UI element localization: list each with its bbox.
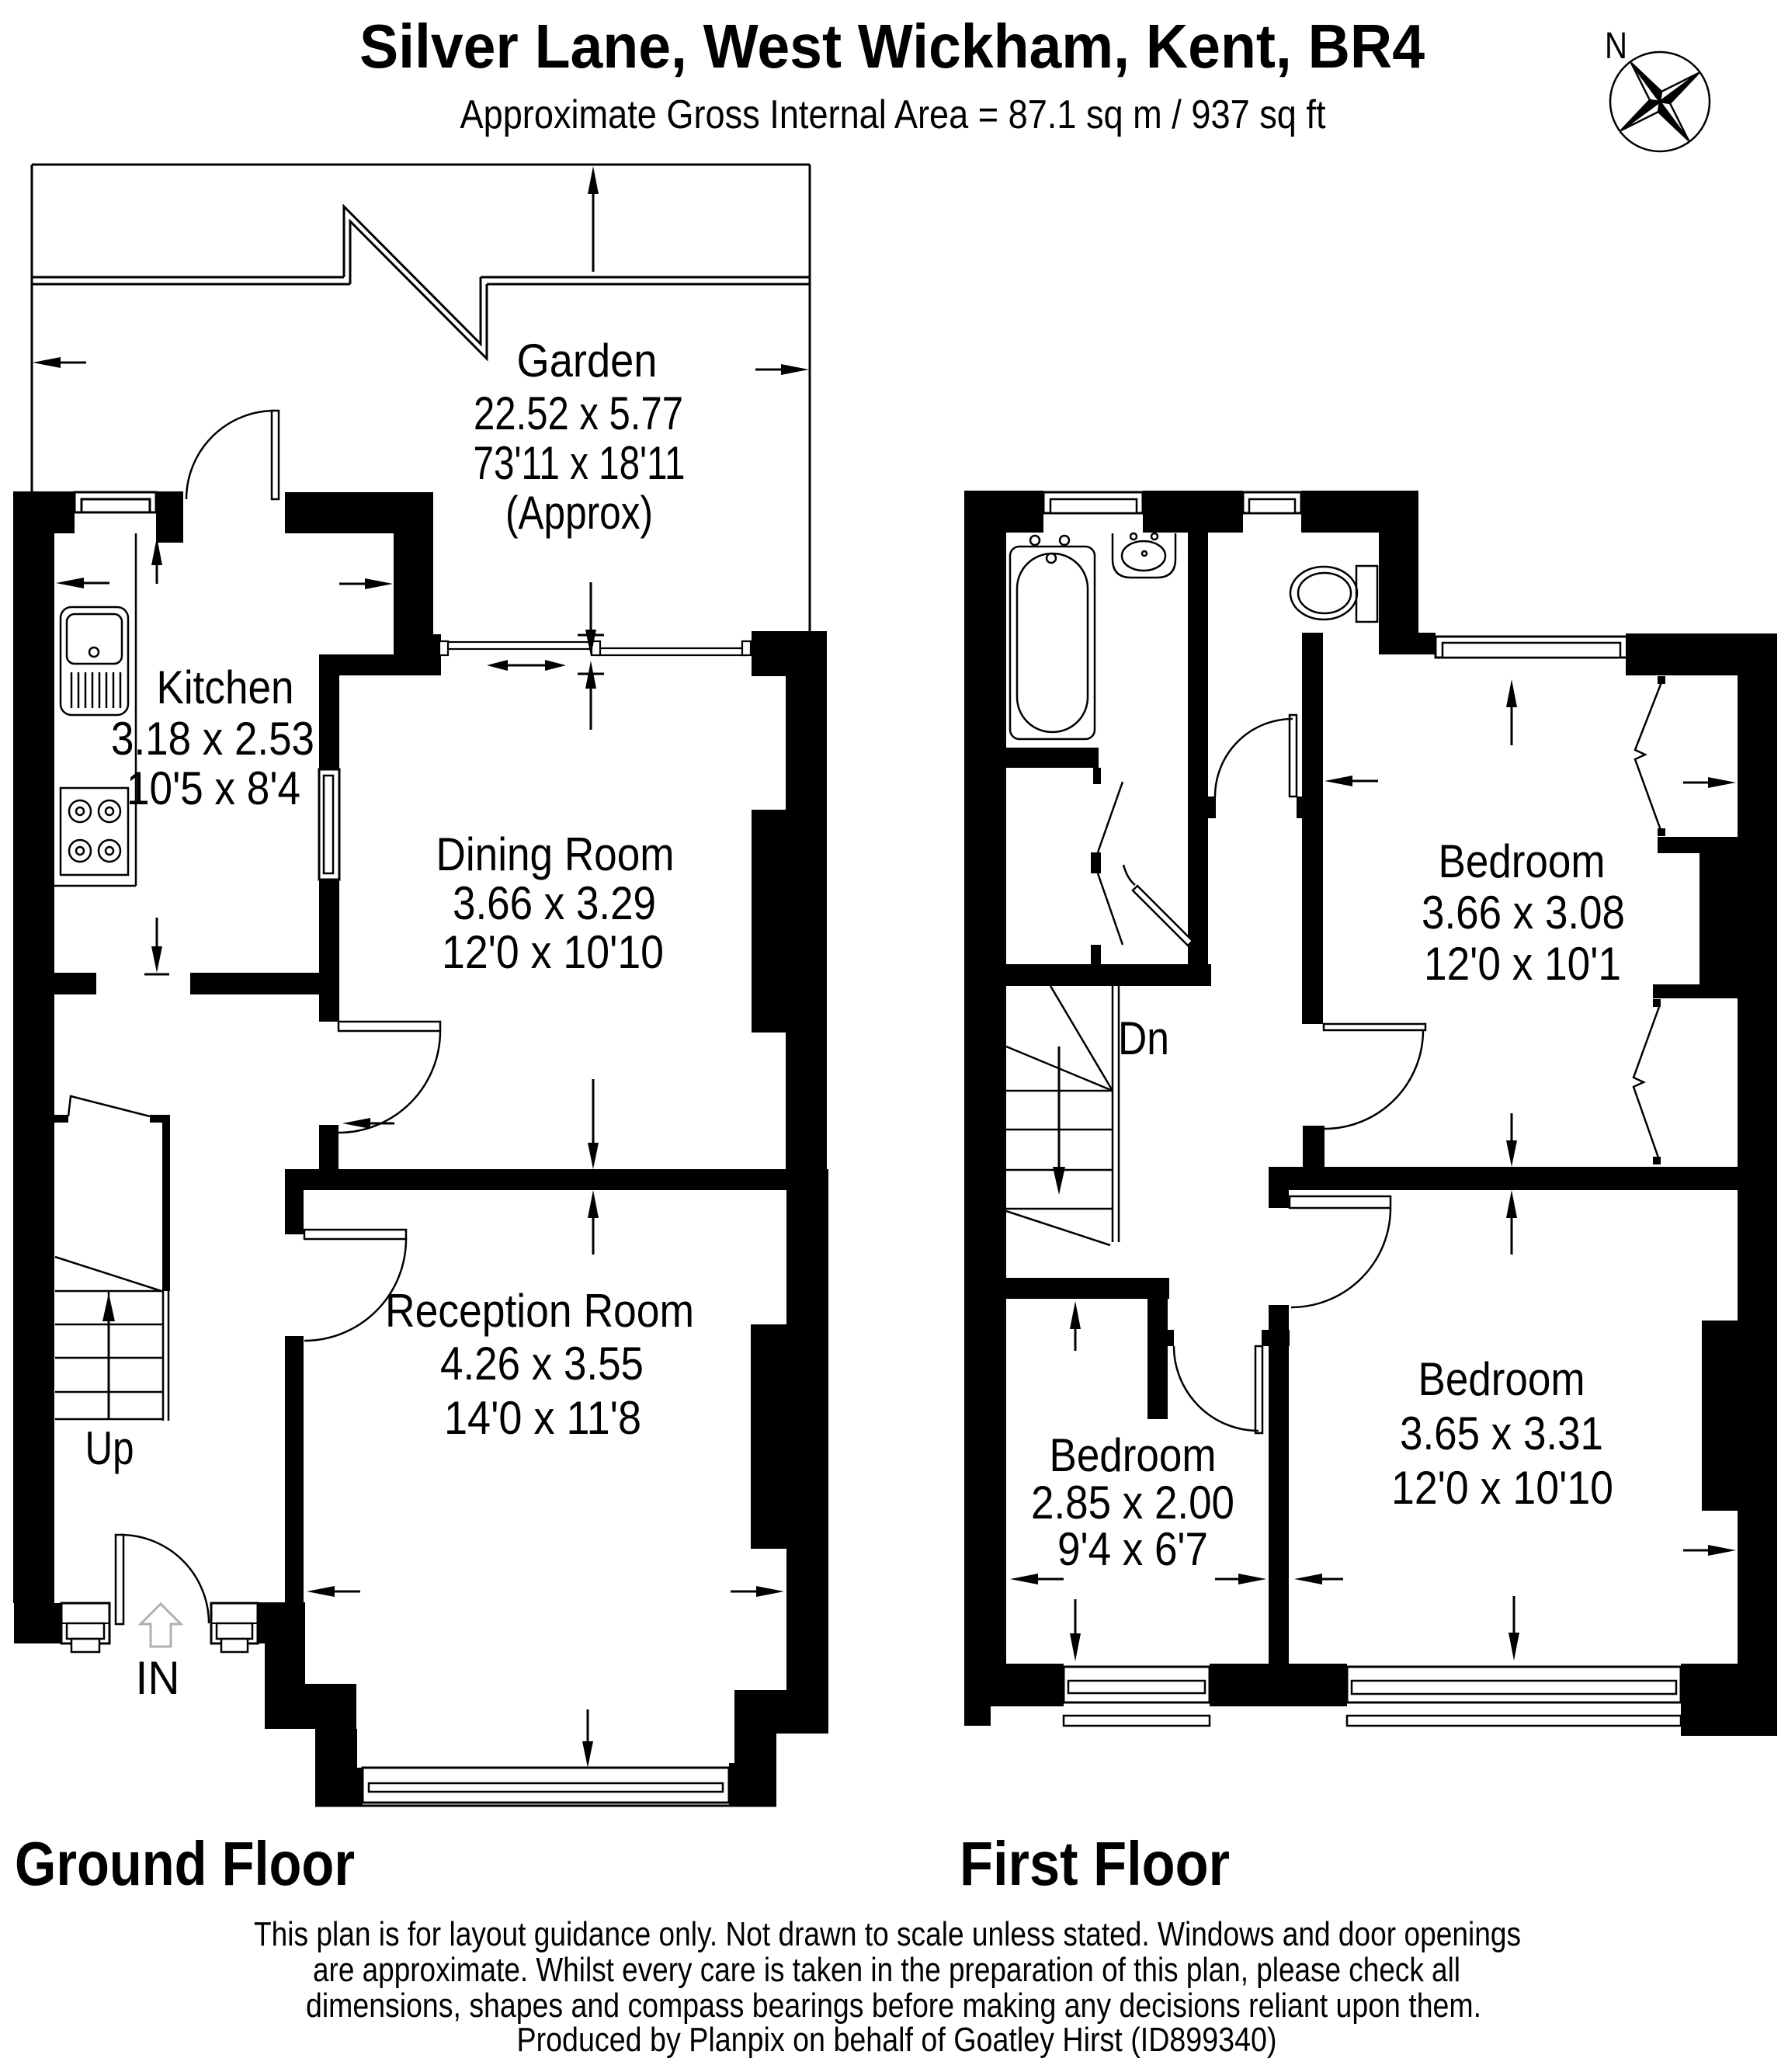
svg-text:First Floor: First Floor — [960, 1829, 1230, 1898]
svg-text:Up: Up — [85, 1422, 134, 1474]
svg-text:Dining Room: Dining Room — [436, 828, 675, 880]
svg-text:3.18 x 2.53: 3.18 x 2.53 — [111, 713, 314, 765]
svg-text:14'0 x 11'8: 14'0 x 11'8 — [444, 1392, 641, 1444]
svg-text:Produced by Planpix on behalf: Produced by Planpix on behalf of Goatley… — [517, 2021, 1277, 2059]
svg-text:4.26 x 3.55: 4.26 x 3.55 — [440, 1338, 644, 1390]
svg-text:Garden: Garden — [517, 335, 658, 387]
svg-text:Reception Room: Reception Room — [385, 1285, 694, 1337]
svg-text:Bedroom: Bedroom — [1418, 1353, 1585, 1405]
svg-text:N: N — [1605, 26, 1627, 67]
svg-text:73'11 x 18'11: 73'11 x 18'11 — [474, 437, 686, 489]
svg-text:2.85 x 2.00: 2.85 x 2.00 — [1031, 1477, 1234, 1529]
svg-text:12'0 x 10'10: 12'0 x 10'10 — [1391, 1462, 1613, 1514]
svg-text:12'0 x 10'1: 12'0 x 10'1 — [1424, 938, 1621, 990]
svg-text:3.66 x 3.08: 3.66 x 3.08 — [1422, 887, 1625, 939]
svg-text:Bedroom: Bedroom — [1439, 835, 1606, 887]
svg-text:are approximate. Whilst every: are approximate. Whilst every care is ta… — [313, 1951, 1460, 1989]
svg-text:(Approx): (Approx) — [505, 487, 653, 539]
svg-text:IN: IN — [136, 1652, 180, 1704]
svg-text:Dn: Dn — [1118, 1012, 1169, 1064]
svg-text:3.66 x 3.29: 3.66 x 3.29 — [453, 877, 656, 929]
svg-text:Silver Lane, West Wickham, Ken: Silver Lane, West Wickham, Kent, BR4 — [359, 12, 1425, 81]
svg-text:12'0 x 10'10: 12'0 x 10'10 — [442, 926, 664, 978]
svg-text:Bedroom: Bedroom — [1050, 1429, 1217, 1481]
svg-text:This plan is for layout guidan: This plan is for layout guidance only. N… — [254, 1915, 1521, 1953]
svg-text:Ground Floor: Ground Floor — [15, 1829, 355, 1898]
svg-text:Approximate Gross Internal Are: Approximate Gross Internal Area = 87.1 s… — [460, 92, 1326, 137]
svg-text:Kitchen: Kitchen — [157, 661, 294, 713]
svg-text:3.65 x 3.31: 3.65 x 3.31 — [1400, 1407, 1603, 1459]
svg-text:10'5 x 8'4: 10'5 x 8'4 — [127, 762, 300, 814]
svg-text:22.52 x 5.77: 22.52 x 5.77 — [474, 387, 683, 439]
svg-text:dimensions, shapes and compass: dimensions, shapes and compass bearings … — [306, 1987, 1481, 2025]
svg-text:9'4 x 6'7: 9'4 x 6'7 — [1057, 1523, 1208, 1575]
